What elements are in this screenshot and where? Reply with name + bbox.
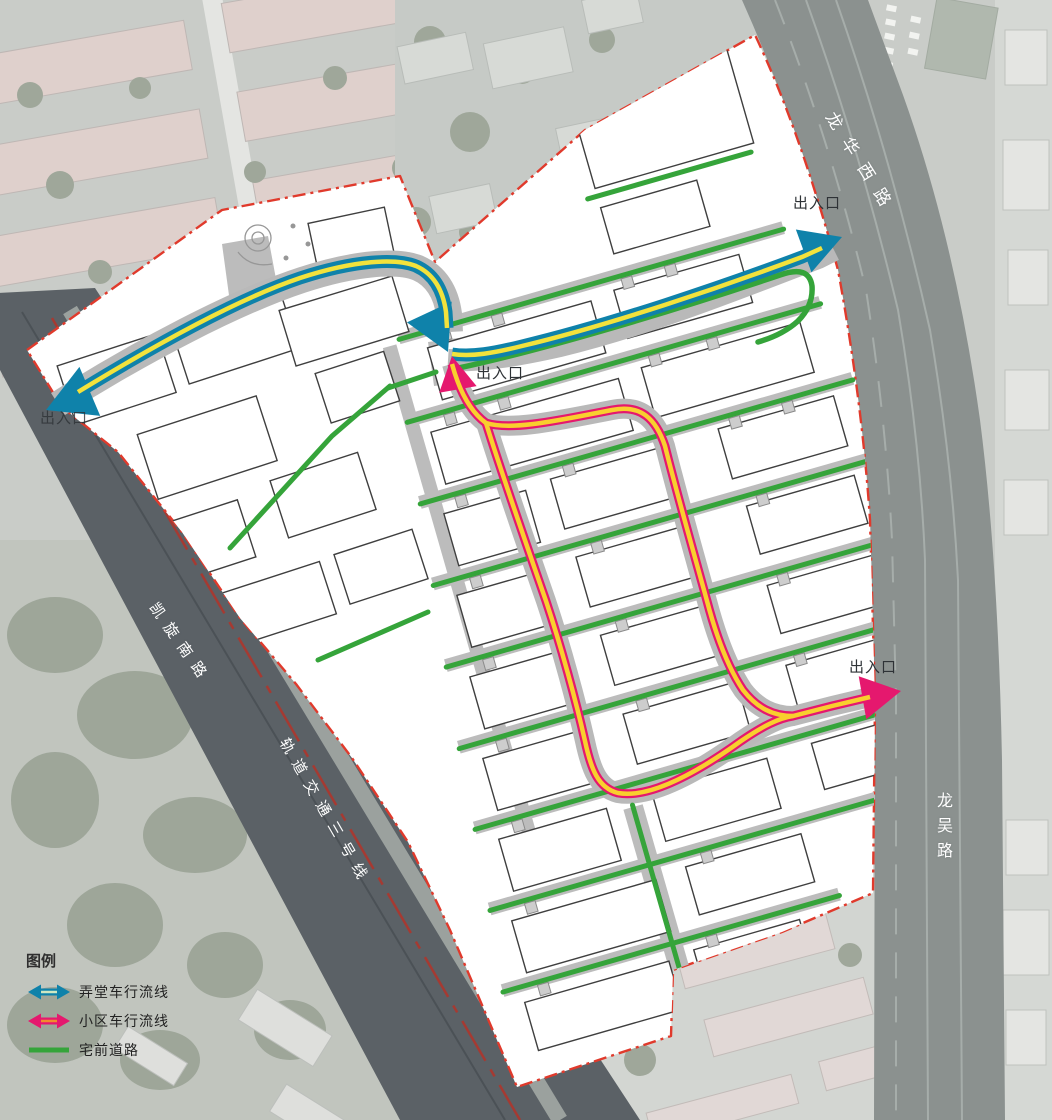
legend-title: 图例 (26, 950, 169, 971)
legend-item-label: 小区车行流线 (79, 1011, 169, 1031)
line-icon (26, 1040, 72, 1060)
entrance-label-northeast: 出入口 (793, 192, 841, 213)
legend-item-label: 宅前道路 (79, 1040, 139, 1060)
legend: 图例 弄堂车行流线 小区车行流线 宅前道路 (26, 950, 169, 1069)
entrance-label-center: 出入口 (476, 362, 524, 383)
road-label-longwu: 龙吴路 (930, 792, 954, 867)
double-arrow-icon (26, 982, 72, 1002)
entrance-label-west: 出入口 (40, 407, 88, 428)
legend-item-front-road: 宅前道路 (26, 1040, 169, 1060)
double-arrow-icon (26, 1011, 72, 1031)
legend-item-label: 弄堂车行流线 (79, 982, 169, 1002)
entrance-label-east: 出入口 (849, 656, 897, 677)
legend-item-district-route: 小区车行流线 (26, 1011, 169, 1031)
legend-item-alley-route: 弄堂车行流线 (26, 982, 169, 1002)
site-plan-page: 龙华西路 龙吴路 凯旋南路 轨道交通三号线 出入口 出入口 出入口 出入口 图例… (0, 0, 1052, 1120)
